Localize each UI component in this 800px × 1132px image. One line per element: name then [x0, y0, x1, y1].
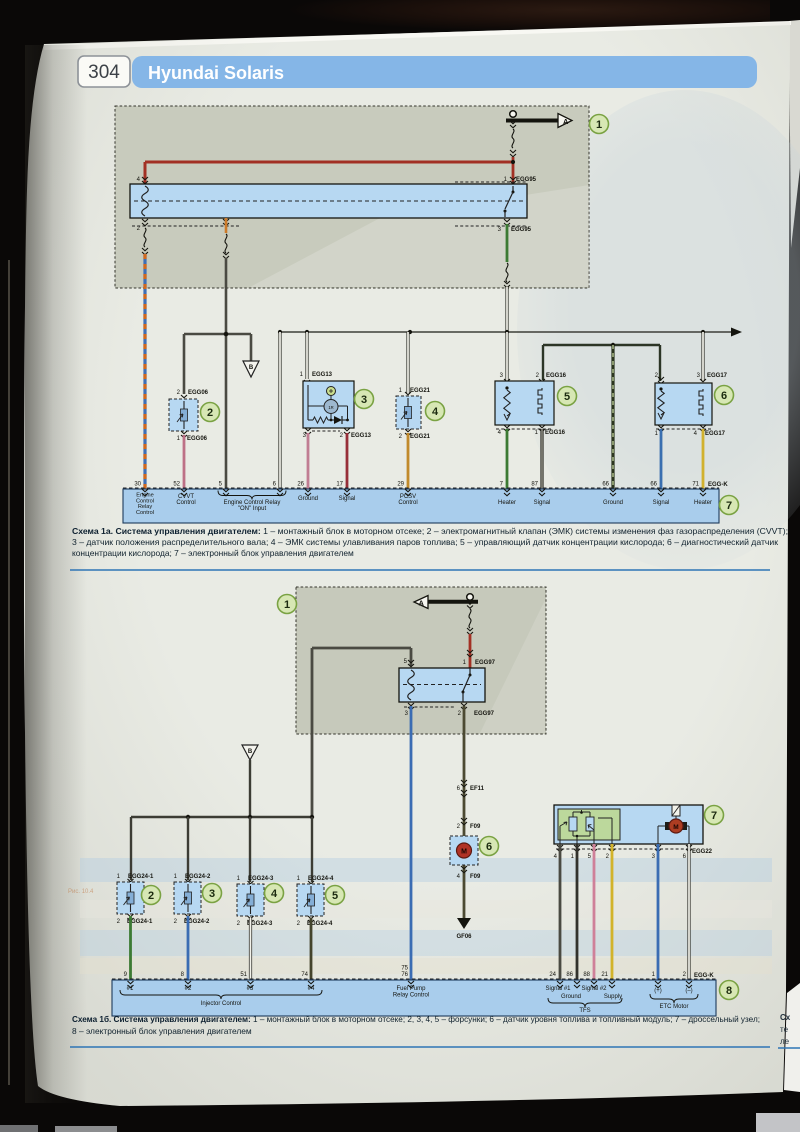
svg-text:EGG24-1: EGG24-1	[128, 874, 154, 880]
svg-text:EGG24-2: EGG24-2	[185, 874, 211, 880]
svg-text:24: 24	[549, 972, 556, 978]
svg-text:1R: 1R	[328, 405, 333, 410]
svg-text:#2: #2	[185, 986, 192, 992]
svg-text:75: 75	[401, 966, 408, 972]
svg-text:Signal: Signal	[653, 500, 670, 506]
svg-text:EGG22: EGG22	[692, 849, 713, 855]
svg-text:8: 8	[726, 985, 732, 997]
svg-text:EGG13: EGG13	[351, 433, 372, 439]
svg-text:#1: #1	[127, 986, 134, 992]
svg-text:Схема 1а. Система управления д: Схема 1а. Система управления двигателем:…	[72, 526, 788, 536]
svg-text:A: A	[563, 117, 569, 126]
svg-text:Ground: Ground	[561, 994, 581, 1000]
svg-text:Signal: Signal	[339, 496, 356, 502]
svg-text:EGG17: EGG17	[705, 431, 726, 437]
svg-text:66: 66	[650, 482, 657, 488]
svg-text:4: 4	[432, 406, 439, 418]
svg-text:Ground: Ground	[603, 500, 623, 506]
svg-text:6: 6	[721, 390, 727, 402]
svg-text:30: 30	[134, 482, 141, 488]
svg-text:Ground: Ground	[298, 496, 318, 502]
svg-text:21: 21	[601, 972, 608, 978]
svg-text:F09: F09	[470, 824, 481, 830]
svg-text:76: 76	[401, 972, 408, 978]
svg-text:4: 4	[271, 888, 278, 900]
svg-text:52: 52	[173, 482, 180, 488]
svg-text:304: 304	[88, 62, 120, 83]
svg-text:Fuel Pump: Fuel Pump	[396, 986, 426, 992]
svg-text:A: A	[419, 599, 425, 608]
svg-text:EF11: EF11	[470, 786, 485, 792]
svg-text:EGG21: EGG21	[410, 434, 431, 440]
svg-text:3: 3	[209, 888, 215, 900]
svg-text:8 – электронный блок управлени: 8 – электронный блок управления двигател…	[72, 1026, 252, 1036]
svg-text:7: 7	[711, 810, 717, 822]
svg-text:EGG17: EGG17	[707, 373, 728, 379]
svg-text:26: 26	[297, 482, 304, 488]
svg-text:M: M	[461, 849, 467, 856]
svg-text:29: 29	[397, 482, 404, 488]
svg-text:Signal: Signal	[534, 500, 551, 506]
svg-text:EGG97: EGG97	[474, 711, 495, 717]
svg-text:Signal #2: Signal #2	[581, 986, 607, 992]
svg-text:EGG13: EGG13	[312, 372, 333, 378]
svg-text:2: 2	[207, 407, 213, 419]
svg-text:#4: #4	[308, 986, 315, 992]
svg-text:Control: Control	[136, 510, 154, 516]
svg-text:7: 7	[726, 500, 732, 512]
svg-text:Схема 1б. Система управления д: Схема 1б. Система управления двигателем:…	[72, 1014, 760, 1024]
svg-text:EGG24-4: EGG24-4	[308, 876, 334, 882]
svg-text:M: M	[673, 824, 678, 831]
svg-text:B: B	[249, 365, 254, 371]
svg-text:6: 6	[486, 841, 492, 853]
svg-text:Рис. 10.4: Рис. 10.4	[68, 889, 94, 895]
svg-text:2: 2	[148, 890, 154, 902]
svg-text:GF06: GF06	[456, 934, 472, 940]
svg-text:EGG06: EGG06	[188, 390, 209, 396]
svg-text:51: 51	[240, 972, 247, 978]
svg-text:88: 88	[583, 972, 590, 978]
svg-text:Injector Control: Injector Control	[201, 1001, 242, 1007]
svg-text:Heater: Heater	[694, 500, 712, 506]
svg-text:концентрации кислорода; 7 – эл: концентрации кислорода; 7 – электронный …	[72, 548, 354, 558]
svg-text:Control: Control	[398, 500, 417, 506]
svg-text:(+): (+)	[654, 988, 662, 994]
svg-text:Control: Control	[176, 500, 195, 506]
svg-text:3: 3	[361, 394, 367, 406]
svg-text:5: 5	[564, 391, 570, 403]
svg-text:Hyundai Solaris: Hyundai Solaris	[148, 63, 284, 83]
svg-text:3 – датчик положения распредел: 3 – датчик положения распределительного …	[72, 537, 778, 547]
svg-text:87: 87	[531, 482, 538, 488]
svg-text:EGG97: EGG97	[475, 660, 496, 666]
svg-text:Сх: Сх	[780, 1013, 791, 1022]
svg-text:66: 66	[602, 482, 609, 488]
svg-text:те: те	[780, 1025, 789, 1034]
svg-text:5: 5	[332, 890, 338, 902]
svg-text:EGG-K: EGG-K	[708, 482, 728, 488]
svg-text:EGG16: EGG16	[546, 373, 567, 379]
svg-text:Relay Control: Relay Control	[393, 993, 429, 999]
svg-text:EGG06: EGG06	[187, 436, 208, 442]
svg-text:1: 1	[596, 119, 602, 131]
svg-text:1: 1	[284, 599, 290, 611]
svg-text:Heater: Heater	[498, 500, 516, 506]
svg-text:86: 86	[566, 972, 573, 978]
svg-text:ле: ле	[780, 1037, 790, 1046]
svg-text:ETC Motor: ETC Motor	[659, 1004, 688, 1010]
svg-text:17: 17	[336, 482, 343, 488]
svg-text:71: 71	[692, 482, 699, 488]
svg-text:(–): (–)	[685, 988, 692, 994]
svg-text:#3: #3	[247, 986, 254, 992]
svg-text:Supply: Supply	[604, 994, 622, 1000]
svg-text:"ON" Input: "ON" Input	[238, 506, 267, 512]
svg-text:EGG21: EGG21	[410, 388, 431, 394]
svg-text:EGG24-3: EGG24-3	[248, 876, 274, 882]
svg-text:F09: F09	[470, 874, 481, 880]
svg-text:74: 74	[301, 972, 308, 978]
svg-text:Signal #1: Signal #1	[545, 986, 571, 992]
svg-text:B: B	[248, 749, 253, 755]
svg-text:EGG95: EGG95	[511, 227, 532, 233]
svg-text:EGG-K: EGG-K	[694, 973, 714, 979]
svg-text:EGG16: EGG16	[545, 430, 566, 436]
